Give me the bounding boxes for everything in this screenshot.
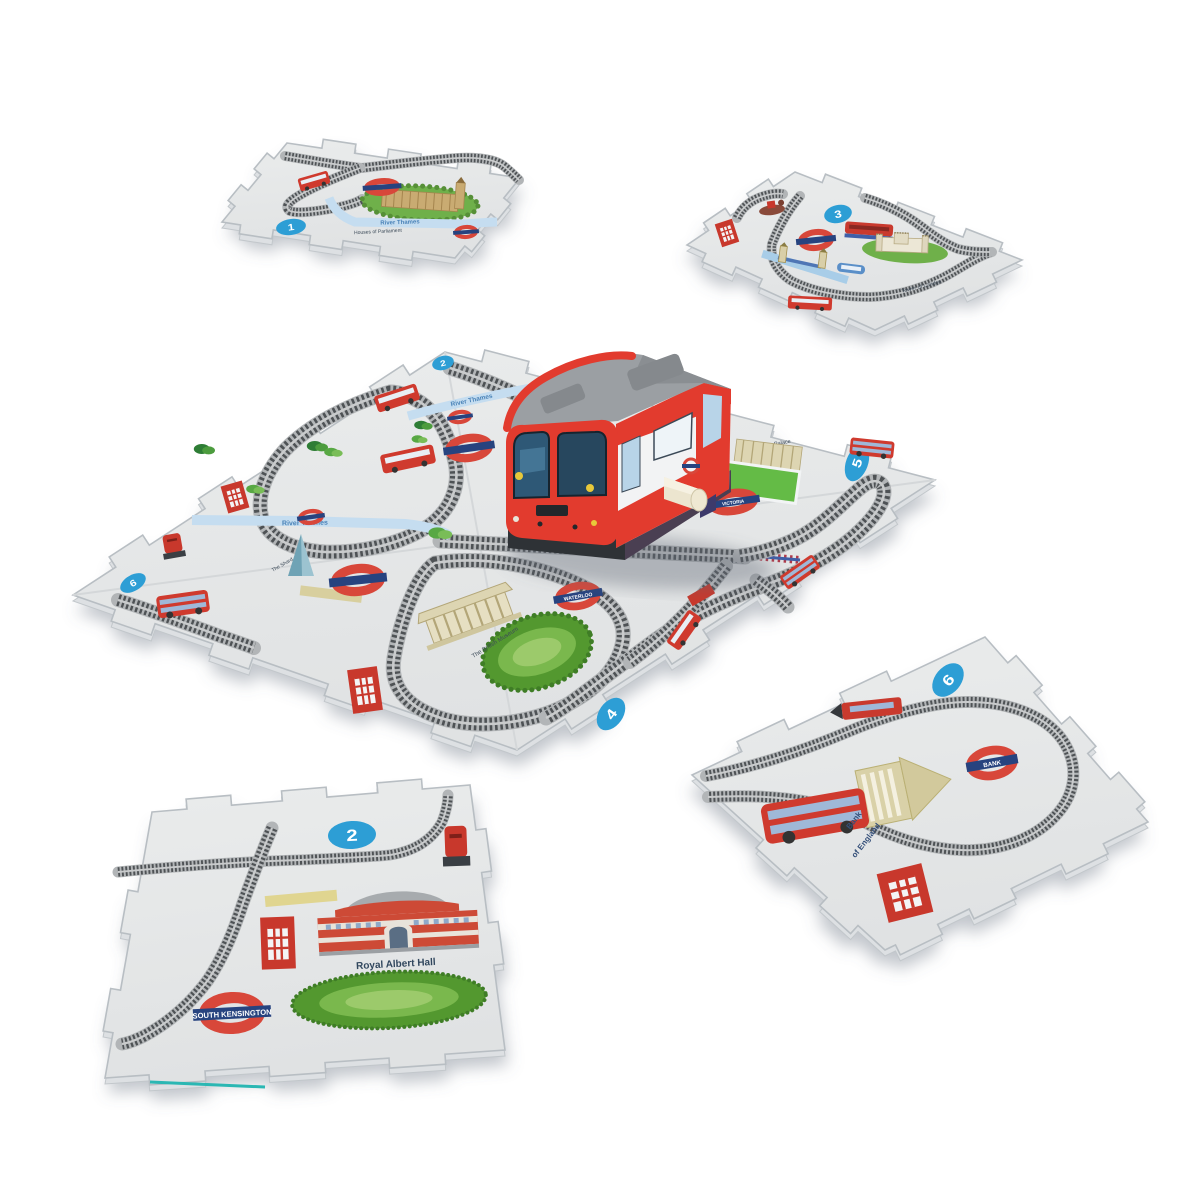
svg-text:2: 2 <box>346 826 358 845</box>
